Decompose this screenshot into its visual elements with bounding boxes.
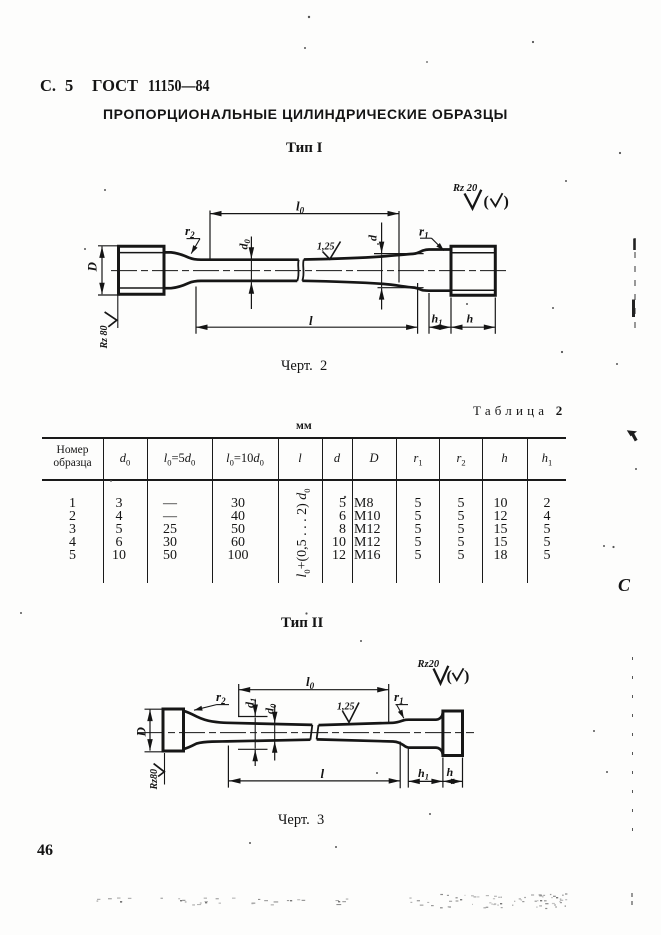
svg-text:C: C — [618, 575, 631, 595]
